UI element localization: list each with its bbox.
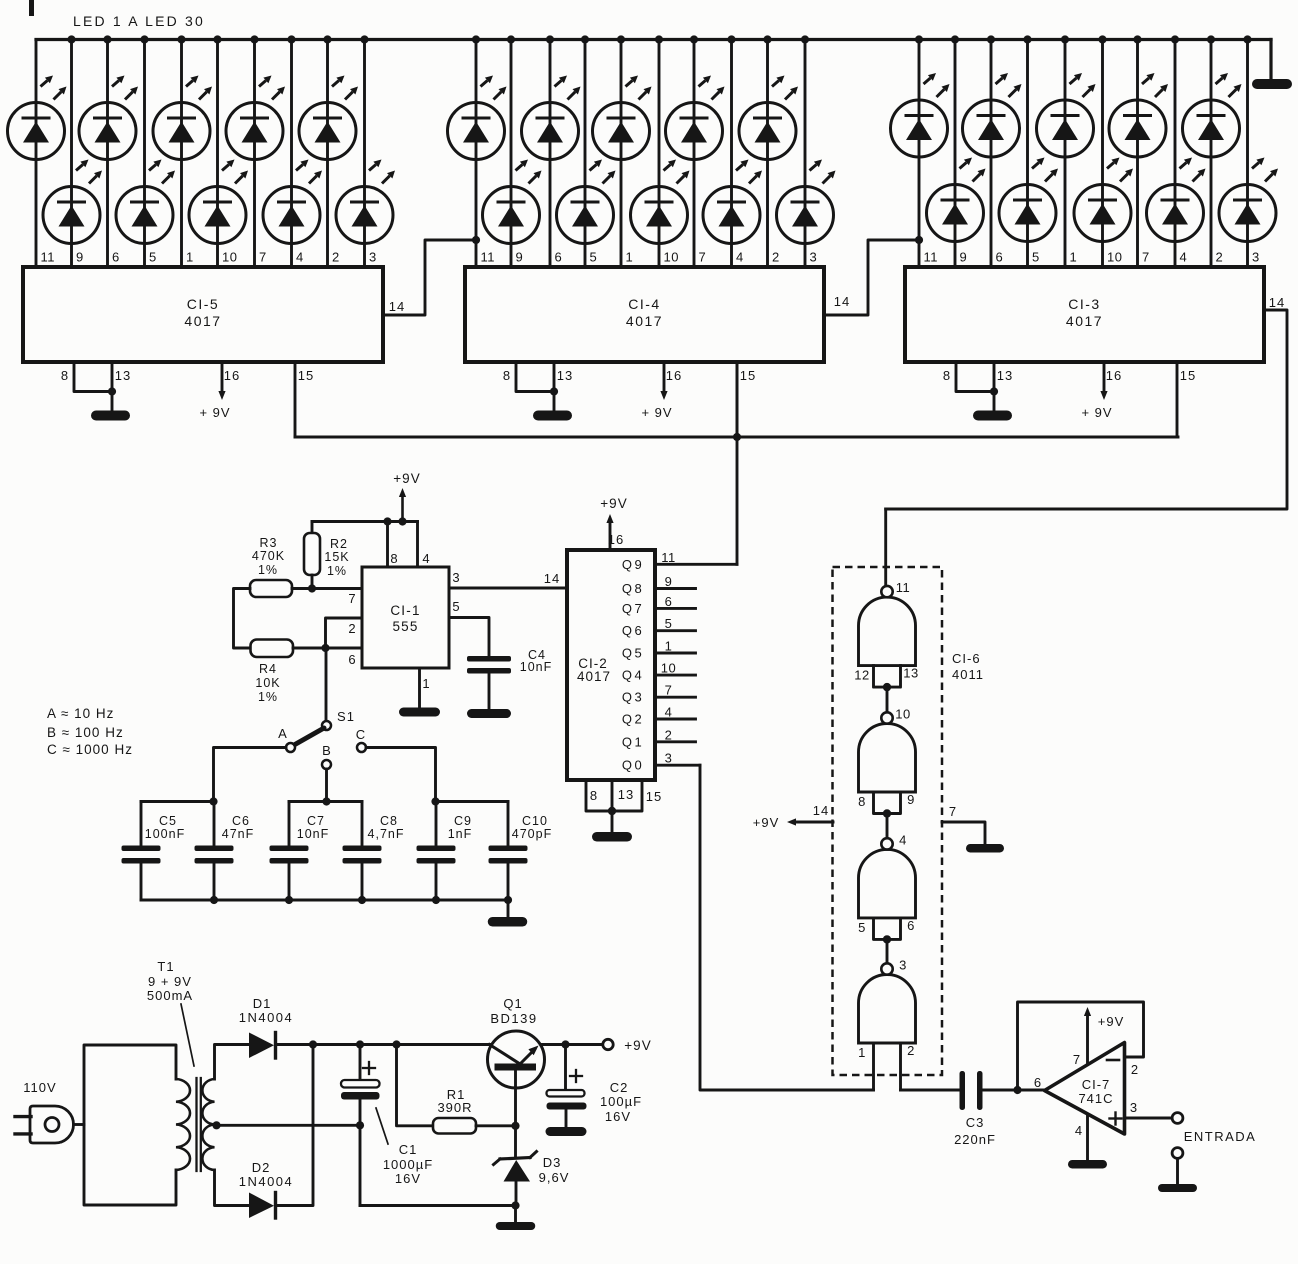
svg-text:1: 1 (626, 250, 634, 265)
svg-text:7: 7 (949, 804, 957, 819)
svg-text:BD139: BD139 (490, 1011, 537, 1026)
svg-text:10: 10 (1107, 250, 1122, 265)
svg-text:10: 10 (664, 250, 679, 265)
svg-text:6: 6 (348, 652, 356, 667)
svg-text:+9V: +9V (393, 471, 420, 486)
svg-text:4011: 4011 (952, 667, 984, 682)
svg-text:+ 9V: + 9V (1081, 405, 1112, 420)
svg-text:10nF: 10nF (520, 660, 553, 674)
svg-text:C1: C1 (399, 1142, 418, 1157)
svg-text:11: 11 (896, 580, 911, 595)
svg-text:C6: C6 (232, 814, 250, 828)
svg-text:10nF: 10nF (297, 827, 330, 841)
svg-text:1: 1 (665, 639, 673, 654)
svg-text:R4: R4 (259, 662, 277, 676)
svg-text:8: 8 (390, 551, 398, 566)
svg-text:Q3: Q3 (622, 690, 644, 705)
svg-text:7: 7 (259, 250, 267, 265)
svg-text:C5: C5 (159, 814, 177, 828)
svg-text:CI-7: CI-7 (1082, 1077, 1111, 1092)
svg-text:Q9: Q9 (622, 557, 644, 572)
svg-text:10: 10 (661, 661, 676, 676)
svg-text:R3: R3 (260, 536, 278, 550)
svg-text:4017: 4017 (577, 669, 611, 684)
svg-text:12: 12 (854, 668, 869, 683)
svg-text:CI-4: CI-4 (628, 296, 660, 312)
svg-text:1: 1 (422, 676, 430, 691)
svg-text:6: 6 (665, 594, 673, 609)
svg-text:8: 8 (858, 794, 866, 809)
svg-text:6: 6 (996, 250, 1004, 265)
svg-text:16: 16 (666, 368, 682, 383)
svg-text:2: 2 (1216, 250, 1224, 265)
svg-text:3: 3 (665, 751, 673, 766)
svg-text:1000µF: 1000µF (383, 1157, 433, 1172)
svg-text:3: 3 (899, 958, 907, 973)
svg-text:3: 3 (1130, 1100, 1138, 1115)
svg-text:Q0: Q0 (622, 758, 644, 773)
svg-text:6: 6 (555, 250, 563, 265)
svg-text:470pF: 470pF (512, 827, 552, 841)
svg-text:3: 3 (810, 250, 818, 265)
svg-text:4017: 4017 (1066, 313, 1103, 329)
svg-text:500mA: 500mA (147, 988, 193, 1003)
svg-text:3: 3 (452, 570, 460, 585)
svg-text:13: 13 (618, 787, 634, 802)
svg-text:741C: 741C (1078, 1091, 1113, 1106)
svg-text:8: 8 (943, 368, 951, 383)
svg-text:6: 6 (1034, 1075, 1042, 1090)
svg-text:15: 15 (740, 368, 756, 383)
svg-text:5: 5 (665, 616, 673, 631)
svg-text:7: 7 (1142, 250, 1150, 265)
svg-text:Q4: Q4 (622, 668, 644, 683)
svg-text:13: 13 (115, 368, 131, 383)
svg-text:1: 1 (1070, 250, 1078, 265)
svg-text:6: 6 (907, 918, 915, 933)
svg-text:5: 5 (590, 250, 598, 265)
svg-text:1: 1 (858, 1045, 866, 1060)
svg-text:+9V: +9V (600, 496, 627, 511)
svg-text:CI-1: CI-1 (390, 603, 420, 618)
svg-text:14: 14 (813, 803, 829, 818)
svg-text:+ 9V: + 9V (199, 405, 230, 420)
svg-text:1%: 1% (258, 563, 278, 577)
svg-text:13: 13 (997, 368, 1013, 383)
svg-text:C ≈ 1000 Hz: C ≈ 1000 Hz (47, 742, 133, 757)
svg-text:2: 2 (348, 621, 356, 636)
svg-text:13: 13 (903, 666, 918, 681)
svg-text:4017: 4017 (626, 313, 663, 329)
svg-text:2: 2 (1131, 1062, 1139, 1077)
svg-text:16V: 16V (395, 1171, 421, 1186)
svg-text:11: 11 (481, 250, 496, 265)
svg-text:1: 1 (186, 250, 194, 265)
svg-text:4: 4 (422, 551, 430, 566)
svg-text:100nF: 100nF (145, 827, 185, 841)
svg-text:9: 9 (76, 250, 84, 265)
svg-text:4: 4 (899, 832, 907, 847)
svg-text:16: 16 (608, 532, 624, 547)
svg-text:47nF: 47nF (222, 827, 255, 841)
svg-text:3: 3 (369, 250, 377, 265)
svg-text:14: 14 (1269, 295, 1285, 310)
svg-text:8: 8 (503, 368, 511, 383)
svg-text:1N4004: 1N4004 (239, 1010, 294, 1025)
svg-text:C2: C2 (610, 1080, 629, 1095)
svg-text:A ≈ 10 Hz: A ≈ 10 Hz (47, 706, 114, 721)
svg-text:Q8: Q8 (622, 581, 644, 596)
svg-text:10: 10 (222, 250, 237, 265)
svg-text:220nF: 220nF (954, 1132, 996, 1147)
svg-text:14: 14 (834, 294, 850, 309)
svg-text:Q1: Q1 (503, 996, 522, 1011)
svg-text:D1: D1 (253, 996, 272, 1011)
svg-text:13: 13 (557, 368, 573, 383)
svg-text:7: 7 (348, 591, 356, 606)
svg-text:2: 2 (665, 727, 673, 742)
svg-text:4: 4 (1075, 1123, 1083, 1138)
svg-text:+9V: +9V (624, 1038, 651, 1053)
svg-text:C: C (356, 727, 366, 742)
svg-text:1N4004: 1N4004 (239, 1174, 294, 1189)
svg-text:5: 5 (858, 920, 866, 935)
svg-text:C3: C3 (966, 1115, 985, 1130)
svg-text:390R: 390R (437, 1100, 472, 1115)
svg-text:2: 2 (907, 1043, 915, 1058)
svg-text:2: 2 (772, 250, 780, 265)
svg-text:C7: C7 (307, 814, 325, 828)
svg-text:7: 7 (665, 683, 673, 698)
svg-text:Q2: Q2 (622, 712, 644, 727)
svg-text:9: 9 (960, 250, 968, 265)
svg-text:Q5: Q5 (622, 646, 644, 661)
svg-text:14: 14 (544, 571, 560, 586)
svg-text:16: 16 (224, 368, 240, 383)
svg-text:6: 6 (112, 250, 120, 265)
svg-text:5: 5 (1032, 250, 1040, 265)
svg-text:3: 3 (1252, 250, 1260, 265)
svg-text:7: 7 (699, 250, 707, 265)
svg-text:B: B (322, 743, 332, 758)
svg-text:1%: 1% (258, 690, 278, 704)
svg-text:1nF: 1nF (448, 827, 473, 841)
svg-text:ENTRADA: ENTRADA (1184, 1129, 1257, 1144)
svg-text:470K: 470K (252, 549, 285, 563)
svg-text:1%: 1% (327, 564, 347, 578)
svg-text:15: 15 (298, 368, 314, 383)
svg-text:A: A (278, 726, 288, 741)
svg-text:5: 5 (452, 599, 460, 614)
svg-text:R2: R2 (330, 537, 348, 551)
svg-text:LED 1 A LED 30: LED 1 A LED 30 (73, 13, 205, 29)
svg-text:8: 8 (61, 368, 69, 383)
svg-text:D3: D3 (543, 1155, 562, 1170)
svg-text:+ 9V: + 9V (641, 405, 672, 420)
svg-text:10: 10 (895, 707, 910, 722)
svg-text:15: 15 (1180, 368, 1196, 383)
svg-text:14: 14 (389, 299, 405, 314)
svg-text:+9V: +9V (1098, 1014, 1125, 1029)
svg-text:555: 555 (392, 619, 418, 634)
svg-text:CI-5: CI-5 (187, 296, 219, 312)
svg-text:S1: S1 (337, 709, 355, 724)
svg-text:CI-3: CI-3 (1068, 296, 1100, 312)
svg-text:C9: C9 (454, 814, 472, 828)
svg-text:C8: C8 (380, 814, 398, 828)
svg-text:11: 11 (41, 250, 56, 265)
svg-text:7: 7 (1073, 1052, 1081, 1067)
svg-text:11: 11 (924, 250, 939, 265)
svg-text:16: 16 (1106, 368, 1122, 383)
svg-text:4: 4 (736, 250, 744, 265)
svg-text:4: 4 (665, 705, 673, 720)
svg-text:9,6V: 9,6V (539, 1170, 570, 1185)
svg-text:CI-6: CI-6 (952, 651, 981, 666)
svg-text:5: 5 (149, 250, 157, 265)
svg-text:B ≈ 100 Hz: B ≈ 100 Hz (47, 725, 124, 740)
svg-text:16V: 16V (605, 1109, 631, 1124)
svg-text:T1: T1 (157, 959, 174, 974)
svg-text:9 + 9V: 9 + 9V (148, 974, 192, 989)
svg-text:9: 9 (907, 792, 915, 807)
svg-text:+9V: +9V (753, 815, 780, 830)
svg-text:2: 2 (332, 250, 340, 265)
svg-text:D2: D2 (252, 1160, 271, 1175)
svg-text:110V: 110V (23, 1080, 56, 1095)
svg-text:C10: C10 (522, 814, 548, 828)
svg-text:10K: 10K (255, 676, 280, 690)
svg-text:4: 4 (296, 250, 304, 265)
svg-text:100µF: 100µF (600, 1094, 642, 1109)
svg-text:15: 15 (646, 789, 662, 804)
svg-text:8: 8 (590, 788, 598, 803)
svg-text:9: 9 (665, 574, 673, 589)
svg-text:Q7: Q7 (622, 601, 644, 616)
svg-text:Q1: Q1 (622, 734, 644, 749)
svg-text:9: 9 (516, 250, 524, 265)
svg-text:11: 11 (661, 550, 676, 565)
svg-text:4: 4 (1180, 250, 1188, 265)
svg-text:4017: 4017 (184, 313, 221, 329)
svg-text:4,7nF: 4,7nF (368, 827, 405, 841)
svg-text:Q6: Q6 (622, 623, 644, 638)
svg-text:15K: 15K (324, 550, 349, 564)
